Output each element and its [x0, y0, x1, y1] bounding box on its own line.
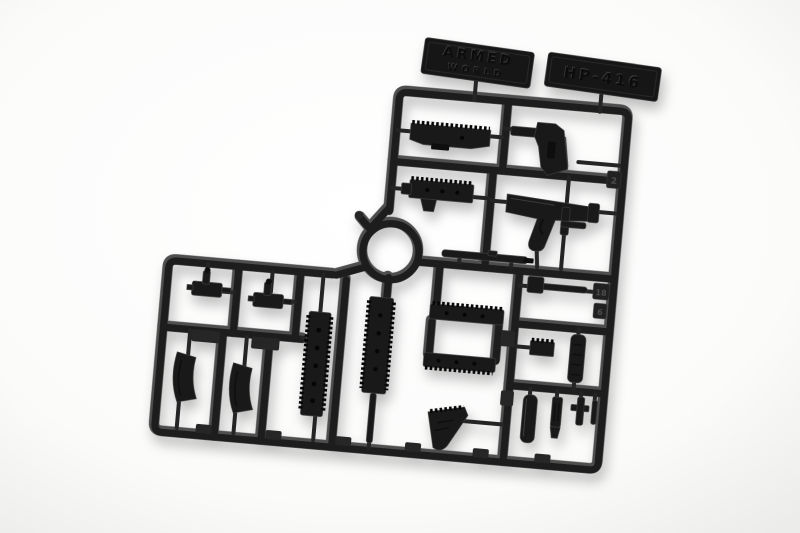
part-number-tab: 6: [593, 303, 607, 319]
part-number-tab: 2: [606, 171, 621, 189]
photo-of-model-kit-sprue: 2 18 6 ARMED ARMED WORLD WORLD HP-416 HP…: [0, 0, 800, 533]
part-number-tab: 18: [593, 283, 610, 300]
part-rail-riser: [529, 340, 554, 357]
sprue-photo: 2 18 6 ARMED ARMED WORLD WORLD HP-416 HP…: [0, 0, 800, 533]
tab-number: 18: [595, 288, 607, 298]
tab-number: 2: [610, 176, 617, 187]
